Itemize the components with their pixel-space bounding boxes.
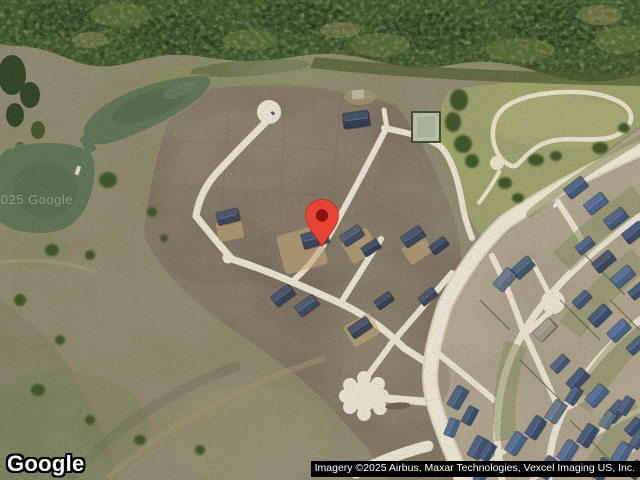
map-pin-icon[interactable] — [303, 198, 341, 248]
imagery-attribution: Imagery ©2025 Airbus, Maxar Technologies… — [311, 461, 640, 477]
pin-body — [306, 200, 339, 247]
pin-dot — [316, 209, 328, 221]
google-logo[interactable]: Google — [7, 451, 85, 477]
map-canvas[interactable]: ©2025 Google Google Imagery ©2025 Airbus… — [0, 0, 640, 480]
